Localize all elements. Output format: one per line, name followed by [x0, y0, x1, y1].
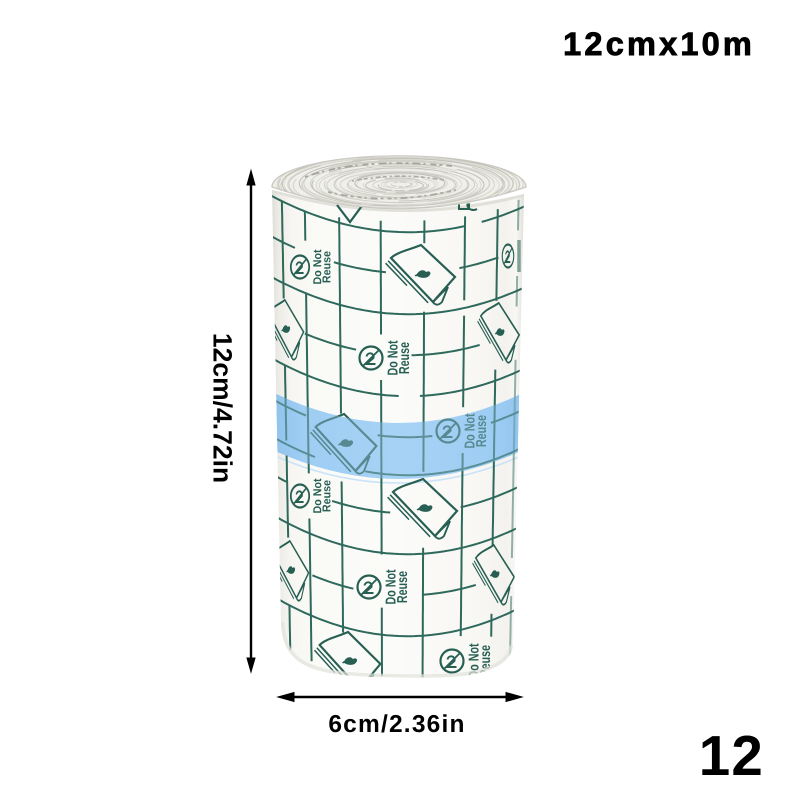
svg-text:12cmx10m: 12cmx10m — [563, 26, 755, 62]
svg-text:12cm/4.72in: 12cm/4.72in — [208, 333, 238, 483]
svg-text:12: 12 — [699, 724, 764, 787]
svg-text:6cm/2.36in: 6cm/2.36in — [328, 711, 465, 738]
